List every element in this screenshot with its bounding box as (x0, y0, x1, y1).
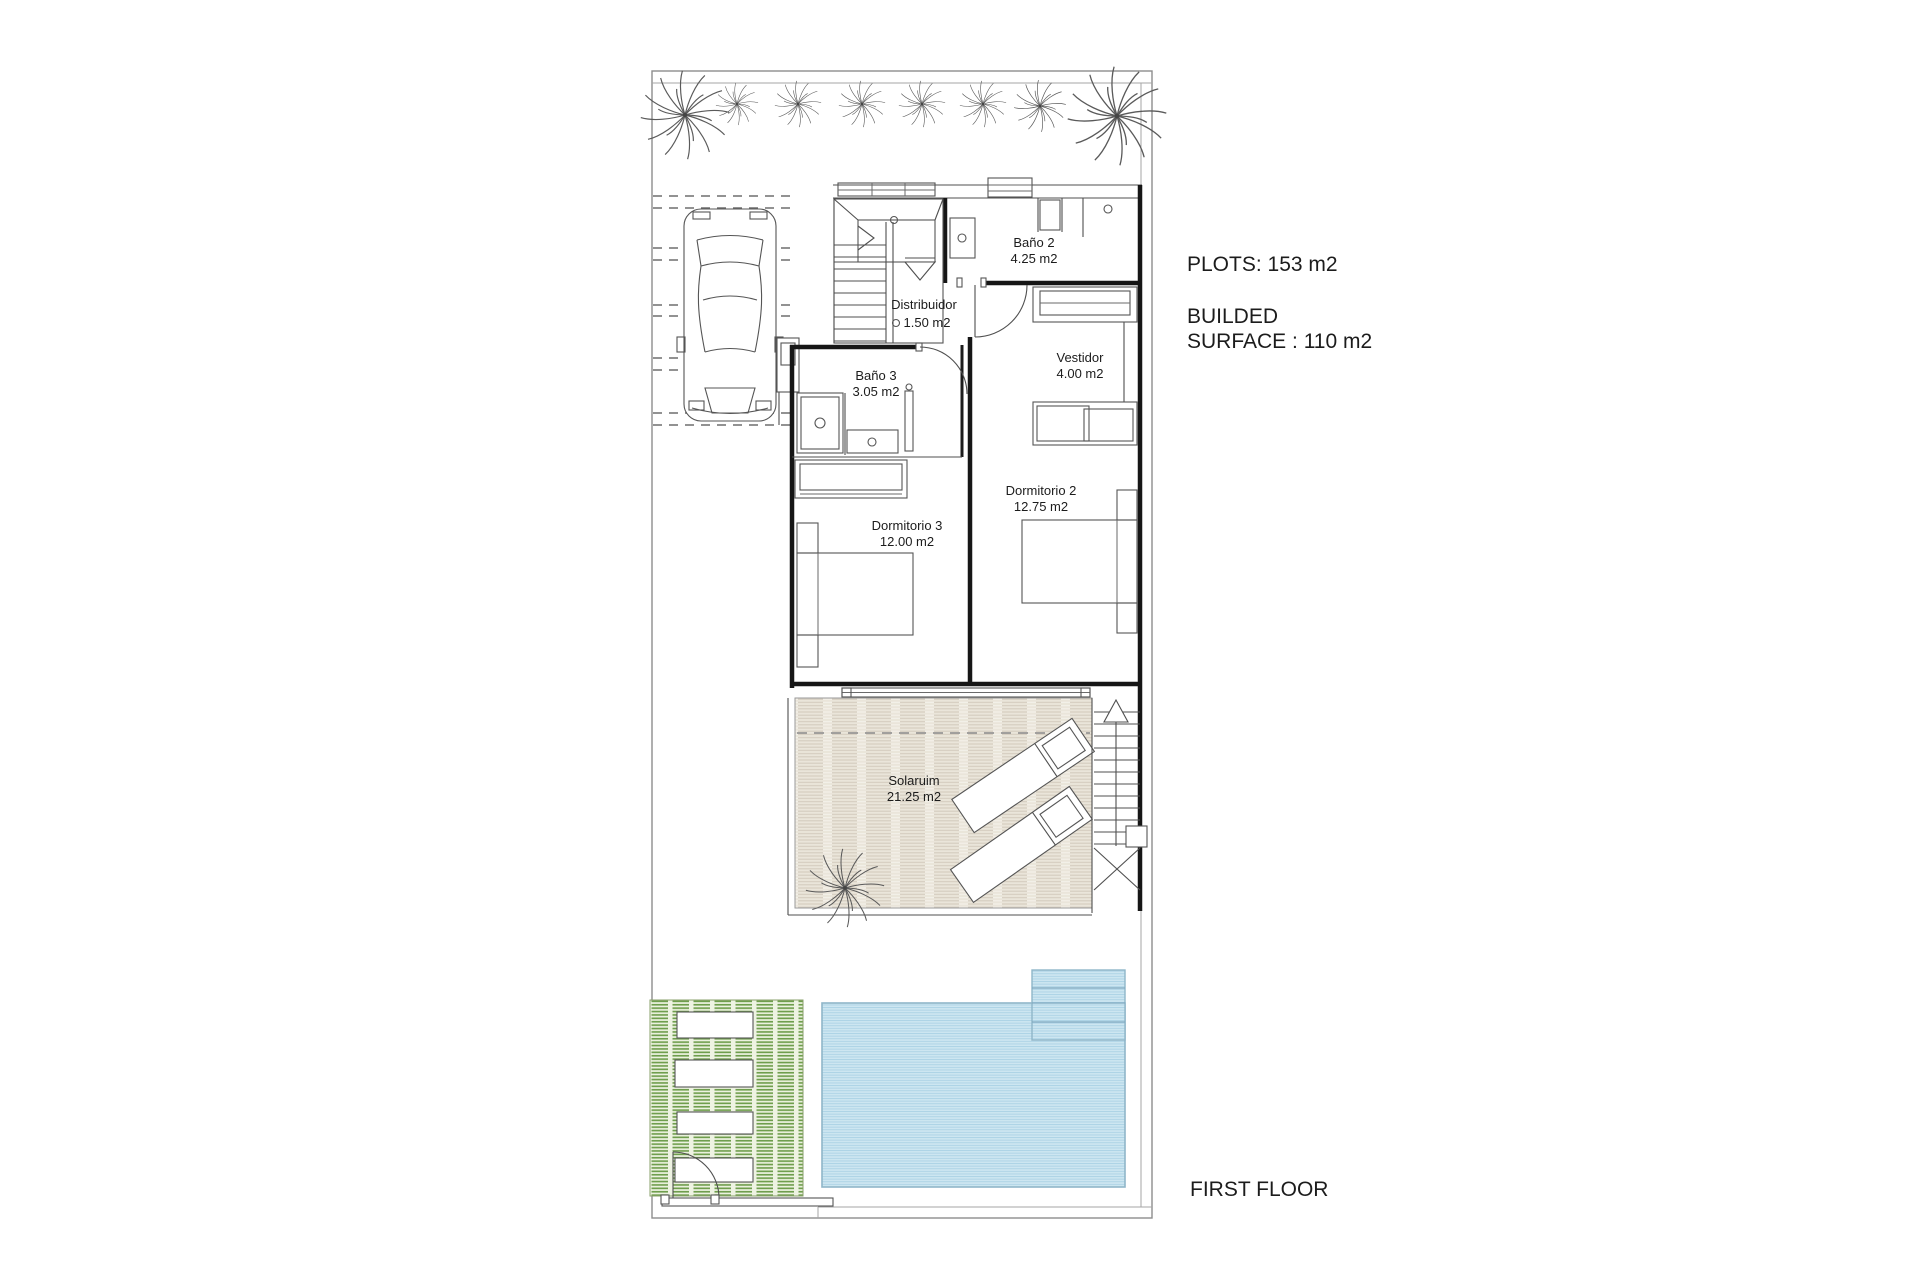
stair-treads (1094, 712, 1140, 844)
window (988, 178, 1032, 197)
builded-text-2: SURFACE : 110 m2 (1187, 330, 1372, 353)
palm-tree (641, 71, 729, 159)
annotations: PLOTS: 153 m2 BUILDED SURFACE : 110 m2 F… (1187, 253, 1372, 1201)
room-area-dormitorio3: 12.00 m2 (880, 534, 934, 549)
palm-tree (716, 83, 758, 125)
door-arc (975, 285, 1027, 337)
room-label-bano2: Baño 2 (1013, 235, 1054, 250)
door-arc (920, 347, 967, 394)
room-area-dormitorio2: 12.75 m2 (1014, 499, 1068, 514)
dormitorio2-wardrobe (1033, 402, 1137, 445)
green-deck (650, 1000, 833, 1206)
builded-text-1: BUILDED (1187, 305, 1278, 328)
palm-tree (1014, 80, 1066, 132)
floor-plan-drawing: Baño 2 4.25 m2 Distribuidor 1.50 m2 Baño… (0, 0, 1920, 1280)
stair-treads (834, 245, 886, 341)
room-area-distribuidor: 1.50 m2 (904, 315, 951, 330)
room-label-bano3: Baño 3 (855, 368, 896, 383)
dormitorio3-closet (795, 460, 907, 498)
up-arrow-icon (1104, 700, 1128, 722)
floor-plan-page: Baño 2 4.25 m2 Distribuidor 1.50 m2 Baño… (0, 0, 1920, 1280)
shower (797, 393, 843, 453)
sink (847, 430, 898, 453)
facade-unit (777, 338, 799, 425)
room-label-distribuidor: Distribuidor (891, 297, 957, 312)
room-area-solarium: 21.25 m2 (887, 789, 941, 804)
room-area-bano2: 4.25 m2 (1011, 251, 1058, 266)
room-label-solarium: Solaruim (888, 773, 939, 788)
towel-radiator (905, 391, 913, 451)
swimming-pool (822, 970, 1125, 1187)
vestidor-closet (1033, 287, 1137, 322)
solarium-deck (788, 698, 1094, 927)
palm-tree (899, 81, 945, 127)
room-area-bano3: 3.05 m2 (853, 384, 900, 399)
palm-tree (839, 81, 885, 127)
room-label-dormitorio3: Dormitorio 3 (872, 518, 943, 533)
window (842, 688, 1090, 697)
floor-title: FIRST FLOOR (1190, 1178, 1328, 1201)
room-area-vestidor: 4.00 m2 (1057, 366, 1104, 381)
palm-tree (775, 81, 821, 127)
palm-tree (960, 81, 1006, 127)
plots-text: PLOTS: 153 m2 (1187, 253, 1338, 276)
entry-step (662, 1198, 833, 1206)
pool-steps (1032, 970, 1125, 1040)
toilet (1040, 200, 1060, 230)
sink (950, 218, 975, 258)
palm-trees-row (641, 67, 1167, 166)
car-top-view (677, 209, 783, 421)
room-label-vestidor: Vestidor (1057, 350, 1105, 365)
room-label-dormitorio2: Dormitorio 2 (1006, 483, 1077, 498)
